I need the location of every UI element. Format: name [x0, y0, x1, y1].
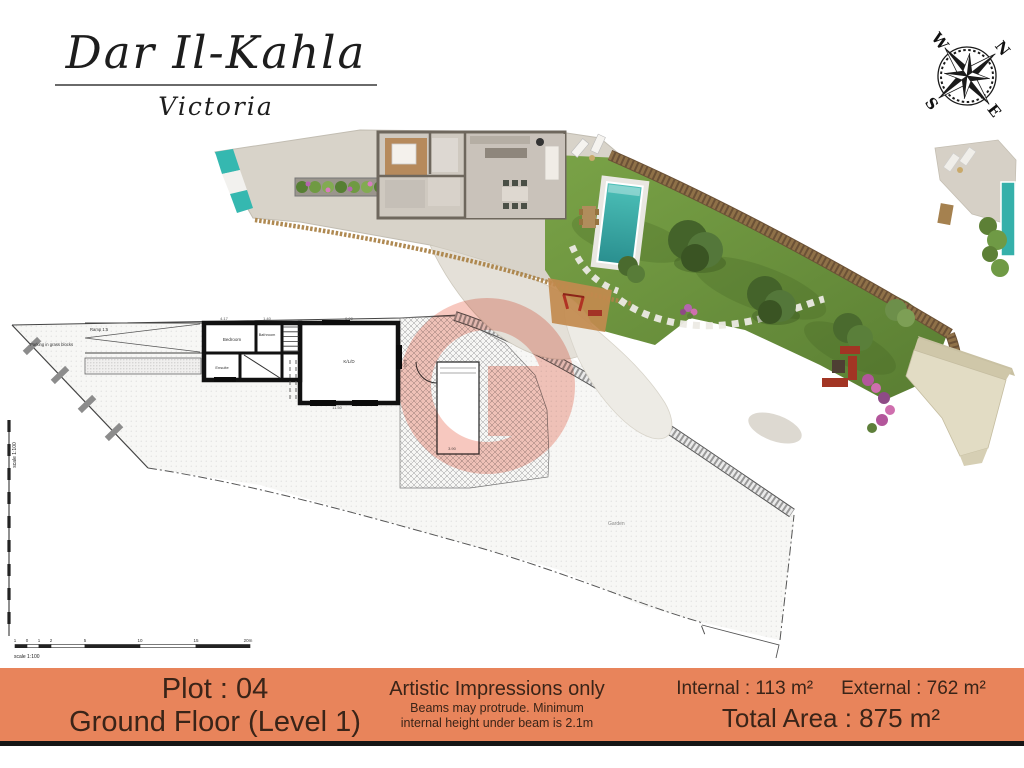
- svg-text:15: 15: [193, 638, 199, 643]
- floor-level-label: Ground Floor (Level 1): [0, 706, 430, 739]
- footer-bar: Plot : 04 Ground Floor (Level 1) Artisti…: [0, 668, 1024, 746]
- scale-label-vertical: scale 1:100: [12, 442, 18, 468]
- disclaimer: Artistic Impressions only Beams may prot…: [372, 677, 622, 731]
- house: [378, 132, 565, 218]
- project-location: Victoria: [55, 92, 377, 121]
- compass-south-label: S: [921, 94, 942, 114]
- svg-text:20m: 20m: [244, 638, 253, 643]
- right-structure: [906, 336, 1015, 466]
- ramp-label: Ramp 1:5: [90, 327, 109, 332]
- compass-rose-icon: N E S W: [915, 22, 1019, 126]
- project-titleblock: Dar Il-Kahla Victoria: [55, 30, 377, 121]
- project-title: Dar Il-Kahla: [55, 30, 377, 86]
- garden-label: Garden: [608, 521, 625, 527]
- aerial-render: [200, 118, 1024, 478]
- compass-west-label: W: [927, 28, 953, 54]
- total-area: Total Area : 875 m²: [638, 703, 1024, 734]
- svg-text:10: 10: [137, 638, 143, 643]
- svg-text:1: 1: [14, 638, 17, 643]
- external-area: External : 762 m²: [841, 678, 986, 700]
- svg-text:1: 1: [38, 638, 41, 643]
- scale-bar-horizontal: 1 0 1 2 5 10 15 20m scale 1:100: [14, 638, 253, 660]
- disclaimer-line-1: Beams may protrude. Minimum: [372, 701, 622, 716]
- neighbour-patio: [935, 140, 1016, 277]
- internal-area: Internal : 113 m²: [676, 678, 813, 700]
- svg-text:5: 5: [84, 638, 87, 643]
- area-summary: Internal : 113 m² External : 762 m² Tota…: [638, 678, 1024, 734]
- svg-text:2: 2: [50, 638, 53, 643]
- compass-north-label: N: [991, 37, 1014, 59]
- svg-text:0: 0: [26, 638, 29, 643]
- scale-bar-vertical: scale 1:100: [7, 420, 18, 636]
- plot-number: Plot : 04: [0, 673, 430, 706]
- planter: [295, 178, 387, 196]
- disclaimer-title: Artistic Impressions only: [372, 677, 622, 701]
- scale-label: scale 1:100: [14, 654, 40, 660]
- watermark-logo: [398, 296, 583, 481]
- disclaimer-line-2: internal height under beam is 2.1m: [372, 716, 622, 731]
- plot-info: Plot : 04 Ground Floor (Level 1): [0, 673, 430, 740]
- parking-label: Parking in grass blocks: [30, 342, 73, 347]
